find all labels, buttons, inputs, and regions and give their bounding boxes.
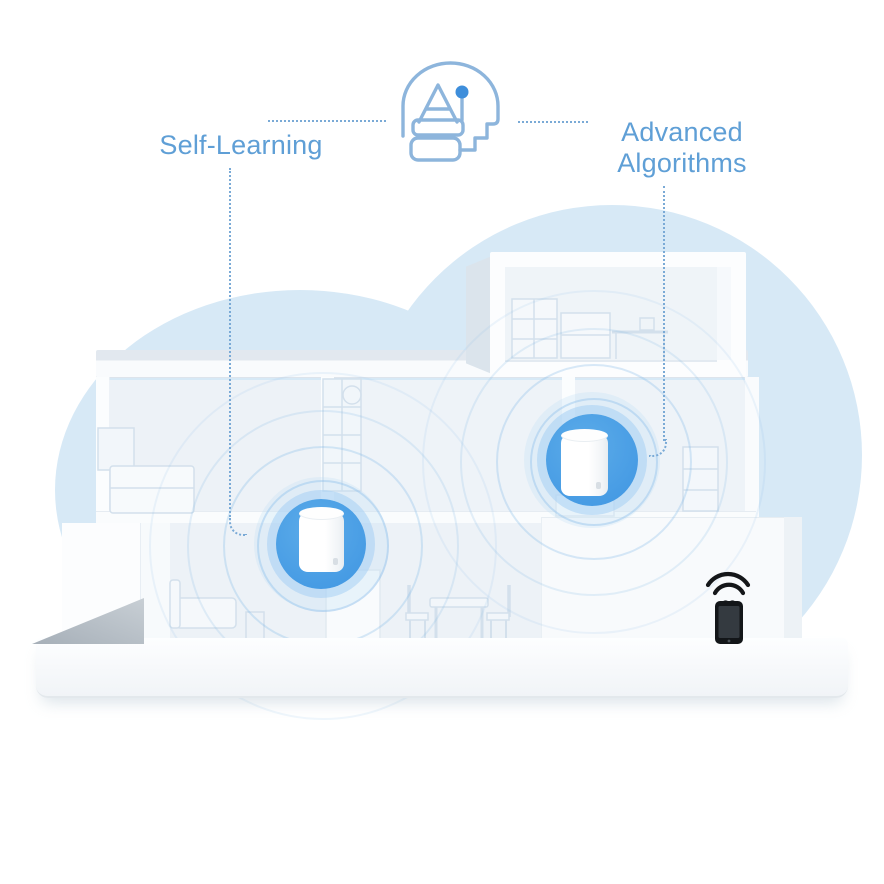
mesh-unit-left-logo [333, 558, 338, 565]
smartphone-wifi-icon [700, 566, 762, 648]
ai-letter-a [419, 85, 457, 122]
ai-mouth-lower [411, 138, 460, 160]
ai-head-icon [398, 56, 504, 182]
phone-home-button [728, 640, 731, 643]
label-advanced-algorithms: Advanced Algorithms [592, 117, 772, 179]
dotted-line-left-vertical [229, 168, 231, 520]
mesh-unit-left-top [299, 507, 344, 520]
label-self-learning: Self-Learning [130, 130, 352, 161]
marketing-graphic: Self-Learning Advanced Algorithms [0, 0, 884, 884]
ai-antenna-dot [456, 86, 469, 99]
mesh-unit-right-top [561, 429, 608, 442]
dotted-line-right-vertical [663, 186, 665, 441]
wifi-inner-arc [715, 585, 743, 593]
dotted-line-left-horizontal [268, 120, 386, 122]
phone-screen [719, 606, 740, 638]
dotted-line-right-horizontal [518, 121, 588, 123]
mesh-unit-right-logo [596, 482, 601, 489]
